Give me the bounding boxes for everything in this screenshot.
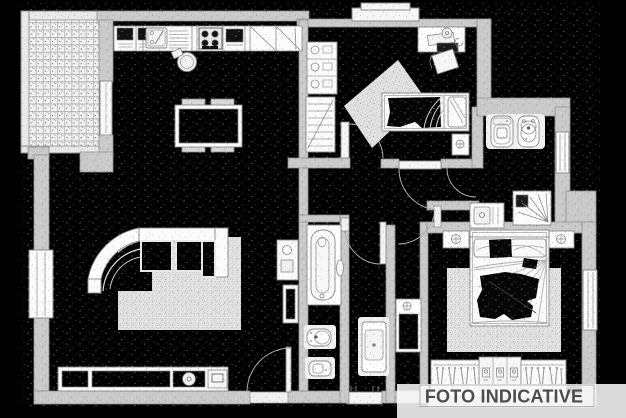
svg-text:FOTO INDICATIVE: FOTO INDICATIVE (425, 387, 583, 407)
